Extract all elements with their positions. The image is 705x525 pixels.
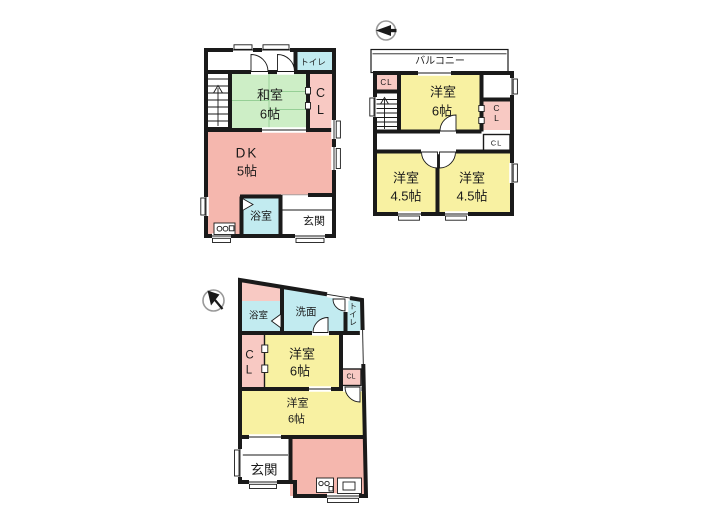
closet-label: L xyxy=(246,365,252,377)
western-room-label: 洋室 xyxy=(393,171,419,184)
closet-label: C xyxy=(493,103,499,112)
washitsu-size-label: 6帖 xyxy=(260,108,280,121)
western-room-label: 洋室 xyxy=(289,347,315,360)
window-sill xyxy=(235,450,240,476)
dk-size-label: 5帖 xyxy=(237,164,257,177)
window-sill xyxy=(336,121,340,138)
balcony-label: バルコニー xyxy=(415,57,465,67)
closet-label: CL xyxy=(491,139,503,147)
washitsu-label: 和室 xyxy=(257,89,283,102)
western-room-size-label: 4.5帖 xyxy=(456,190,487,203)
closet-door-mark xyxy=(479,118,484,124)
closet-label: L xyxy=(494,114,499,123)
window-sill xyxy=(513,164,517,182)
western-room-label: 洋室 xyxy=(287,399,309,410)
closet-room xyxy=(308,72,334,130)
closet-label: L xyxy=(317,104,324,117)
floorplan-image: トイレ 和室 6帖 C L DK 5帖 浴室 玄関 バルコニー CL 洋室 6帖… xyxy=(0,0,705,525)
kitchen-counter-icon xyxy=(214,223,235,235)
western-room-size-label: 6帖 xyxy=(290,364,310,377)
entrance-door-mark xyxy=(250,484,277,488)
toilet-label: トイレ xyxy=(300,57,326,66)
window-sill xyxy=(213,238,231,242)
closet-label: CL xyxy=(380,79,392,87)
entrance-label: 玄関 xyxy=(251,463,278,477)
window-sill xyxy=(234,45,252,50)
washroom-label: 洗面 xyxy=(296,307,317,318)
kitchen-counter-icon xyxy=(317,478,362,494)
window-sill xyxy=(336,149,340,169)
bath-label: 浴室 xyxy=(249,311,268,321)
closet-label: C xyxy=(245,350,253,362)
window-sill xyxy=(328,498,359,502)
bath-label: 浴室 xyxy=(250,211,272,222)
window-sill xyxy=(446,216,467,220)
closet-label: CL xyxy=(347,374,356,381)
western-room-6-upper xyxy=(264,333,341,389)
western-room-size-label: 6帖 xyxy=(432,104,452,117)
western-room-size-label: 4.5帖 xyxy=(390,190,421,203)
closet-door-mark xyxy=(306,103,311,110)
floorplan-drawing xyxy=(0,0,705,525)
entrance-label: 玄関 xyxy=(303,217,325,228)
dk-label: DK xyxy=(236,146,259,160)
window-sill xyxy=(201,198,205,215)
dk-room xyxy=(206,130,334,195)
closet-label: C xyxy=(316,87,325,100)
closet-door-mark xyxy=(262,345,268,353)
western-room-label: 洋室 xyxy=(430,86,456,99)
closet-door-mark xyxy=(479,106,484,112)
closet-door-mark xyxy=(306,88,311,95)
toilet-label: トイレ xyxy=(349,302,357,326)
window-sill xyxy=(513,79,517,94)
window-sill xyxy=(399,216,420,220)
western-room-label: 洋室 xyxy=(459,171,485,184)
closet-door-mark xyxy=(262,365,268,373)
entrance-door-mark xyxy=(296,238,324,242)
north-arrow-icon xyxy=(203,290,224,311)
window-sill xyxy=(370,98,374,116)
western-room-size-label: 6帖 xyxy=(288,414,305,425)
north-arrow-icon xyxy=(376,21,397,40)
window-sill xyxy=(263,45,289,50)
